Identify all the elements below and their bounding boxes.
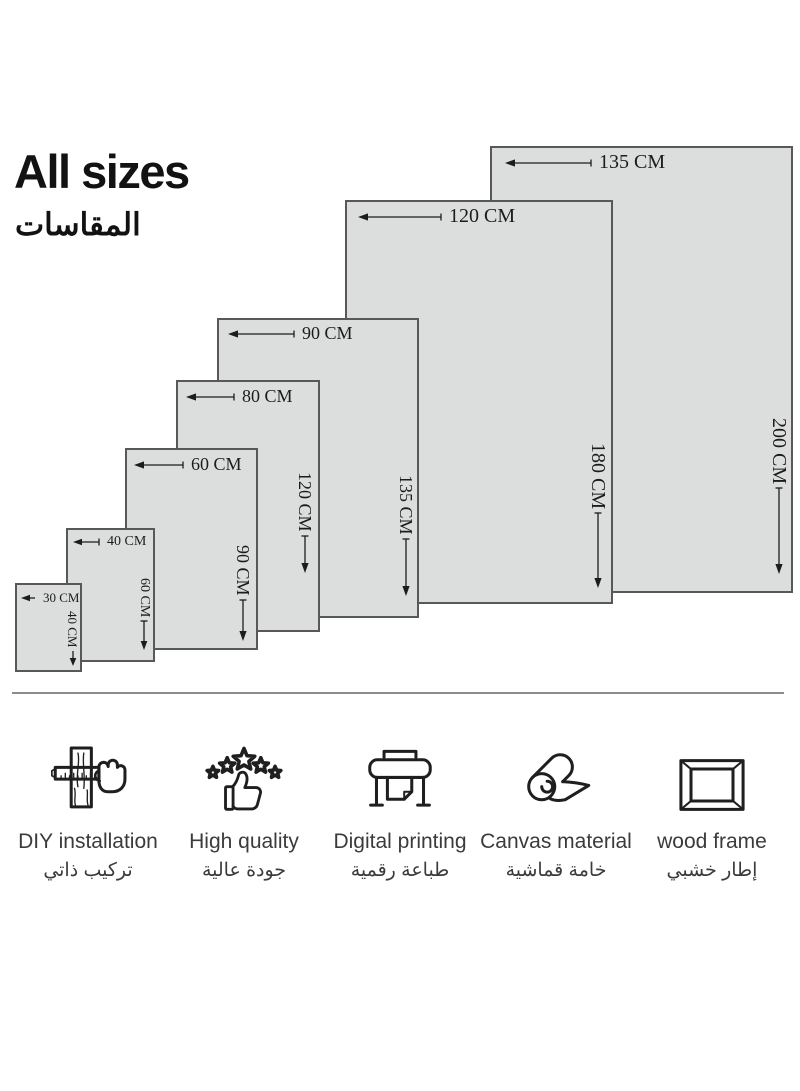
feature-wood-frame: wood frame إطار خشبي <box>634 742 790 882</box>
height-label: 120 CM <box>296 472 314 573</box>
feature-label-en: High quality <box>189 830 299 854</box>
width-label: 40 CM <box>73 534 146 550</box>
height-label: 40 CM <box>66 611 79 666</box>
feature-canvas-material: Canvas material خامة قماشية <box>478 742 634 882</box>
wood-frame-icon <box>670 742 754 828</box>
down-arrow-icon <box>400 538 412 596</box>
down-arrow-icon <box>773 487 785 574</box>
feature-label-ar: جودة عالية <box>202 859 286 882</box>
left-arrow-icon <box>505 157 592 169</box>
width-label: 30 CM <box>21 590 79 606</box>
left-arrow-icon <box>21 592 36 604</box>
digital-printing-icon <box>358 742 442 828</box>
width-label: 90 CM <box>228 323 353 344</box>
down-arrow-icon <box>138 620 150 650</box>
feature-digital-printing: Digital printing طباعة رقمية <box>322 742 478 882</box>
down-arrow-icon <box>299 535 311 573</box>
size-rect-30x40: 30 CM 40 CM <box>15 583 82 672</box>
height-label: 135 CM <box>397 475 415 596</box>
feature-label-en: wood frame <box>657 830 767 854</box>
height-label: 90 CM <box>234 545 252 641</box>
page-title: All sizes <box>14 146 189 198</box>
page-title-arabic: المقاسات <box>15 207 141 243</box>
width-label: 80 CM <box>186 386 293 407</box>
feature-label-en: DIY installation <box>18 830 158 854</box>
width-label: 120 CM <box>358 205 515 228</box>
down-arrow-icon <box>592 512 604 588</box>
feature-high-quality: High quality جودة عالية <box>166 742 322 882</box>
canvas-material-icon <box>514 742 598 828</box>
left-arrow-icon <box>358 211 442 223</box>
feature-label-ar: تركيب ذاتي <box>43 859 132 882</box>
feature-label-ar: إطار خشبي <box>667 859 758 882</box>
high-quality-icon <box>202 742 286 828</box>
height-label: 180 CM <box>588 443 608 588</box>
feature-label-en: Canvas material <box>480 830 632 854</box>
left-arrow-icon <box>134 459 184 471</box>
height-label: 200 CM <box>769 418 789 574</box>
size-chart-page: All sizes المقاسات 135 CM 200 CM <box>0 0 800 1091</box>
feature-list: DIY installation تركيب ذاتي High quality… <box>10 742 790 882</box>
down-arrow-icon <box>237 599 249 641</box>
feature-label-en: Digital printing <box>333 830 466 854</box>
left-arrow-icon <box>73 536 100 548</box>
width-label: 60 CM <box>134 454 242 475</box>
feature-label-ar: خامة قماشية <box>506 859 607 882</box>
left-arrow-icon <box>228 328 295 340</box>
diy-installation-icon <box>46 742 130 828</box>
down-arrow-icon <box>67 650 79 666</box>
height-label: 60 CM <box>137 578 151 650</box>
width-label: 135 CM <box>505 151 665 174</box>
section-divider <box>12 692 784 694</box>
feature-label-ar: طباعة رقمية <box>351 859 450 882</box>
left-arrow-icon <box>186 391 235 403</box>
feature-diy-installation: DIY installation تركيب ذاتي <box>10 742 166 882</box>
